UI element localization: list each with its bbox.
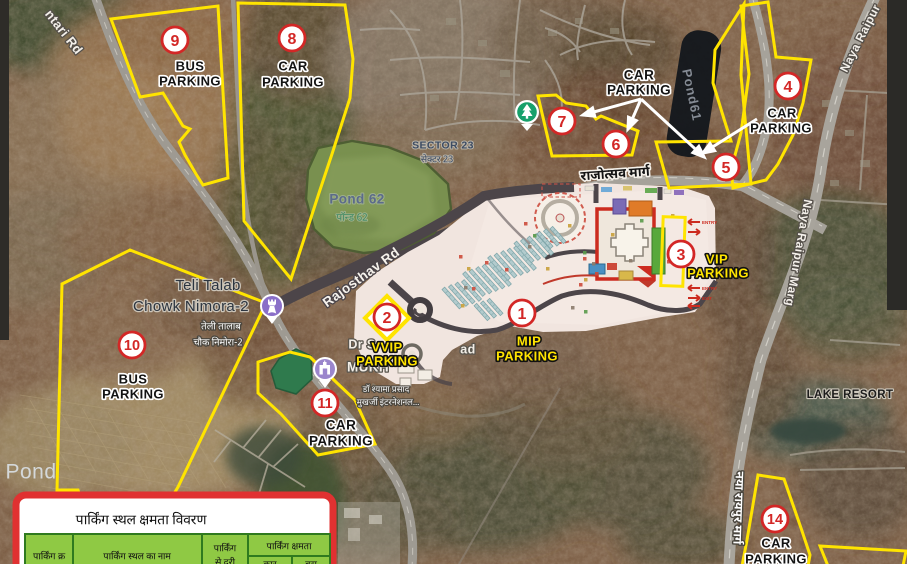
svg-text:PARKING: PARKING <box>687 266 749 281</box>
svg-text:7: 7 <box>558 114 567 131</box>
svg-text:CAR: CAR <box>278 59 308 74</box>
svg-text:CAR: CAR <box>761 536 791 551</box>
svg-text:CAR: CAR <box>624 68 654 83</box>
svg-text:Chowk Nimora-2: Chowk Nimora-2 <box>133 298 249 315</box>
svg-text:ENTRY: ENTRY <box>702 286 717 291</box>
svg-text:PARKING: PARKING <box>102 387 164 402</box>
svg-text:1: 1 <box>518 306 527 323</box>
svg-text:6: 6 <box>612 137 621 154</box>
svg-text:4: 4 <box>784 79 793 96</box>
svg-text:ad: ad <box>460 342 475 356</box>
svg-text:ENTRY: ENTRY <box>702 220 717 225</box>
svg-text:MIP: MIP <box>517 334 541 349</box>
svg-text:11: 11 <box>317 396 332 412</box>
svg-text:BUS: BUS <box>176 59 205 74</box>
svg-text:PARKING: PARKING <box>607 83 671 98</box>
svg-text:CAR: CAR <box>767 106 797 121</box>
svg-text:14: 14 <box>767 512 783 528</box>
svg-text:BUS: BUS <box>119 372 148 387</box>
svg-text:PARKING: PARKING <box>356 354 418 369</box>
svg-text:Pond: Pond <box>5 460 56 483</box>
svg-text:8: 8 <box>288 31 297 48</box>
svg-text:Pond 62: Pond 62 <box>329 192 384 207</box>
svg-text:PARKING: PARKING <box>262 75 324 90</box>
svg-text:LAKE RESORT: LAKE RESORT <box>807 389 894 401</box>
svg-text:PARKING: PARKING <box>750 121 812 136</box>
svg-text:PARKING: PARKING <box>496 349 558 364</box>
svg-text:VVIP: VVIP <box>371 340 402 355</box>
svg-text:Teli Talab: Teli Talab <box>175 277 240 294</box>
svg-text:SECTOR 23: SECTOR 23 <box>412 140 474 152</box>
svg-text:10: 10 <box>124 338 140 354</box>
svg-text:CAR: CAR <box>326 418 356 433</box>
svg-text:EXIT: EXIT <box>702 296 712 301</box>
svg-text:PARKING: PARKING <box>745 552 807 564</box>
svg-text:PARKING: PARKING <box>159 74 221 89</box>
svg-text:9: 9 <box>171 33 180 50</box>
svg-text:PARKING: PARKING <box>309 434 373 449</box>
svg-text:VIP: VIP <box>706 252 728 267</box>
svg-text:3: 3 <box>677 247 686 264</box>
svg-text:2: 2 <box>383 310 392 327</box>
svg-text:5: 5 <box>722 160 731 177</box>
